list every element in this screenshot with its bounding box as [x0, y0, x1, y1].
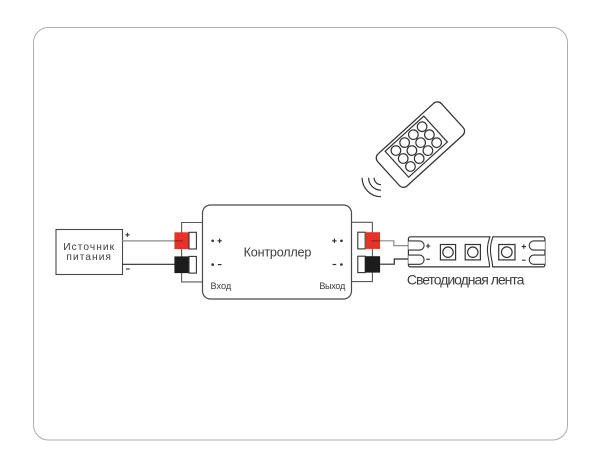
svg-text:Контроллер: Контроллер	[244, 246, 312, 260]
svg-text:питания: питания	[66, 252, 112, 263]
svg-text:Выход: Выход	[319, 281, 346, 291]
svg-text:Вход: Вход	[211, 281, 232, 291]
svg-text:Светодиодная лента: Светодиодная лента	[407, 271, 525, 287]
